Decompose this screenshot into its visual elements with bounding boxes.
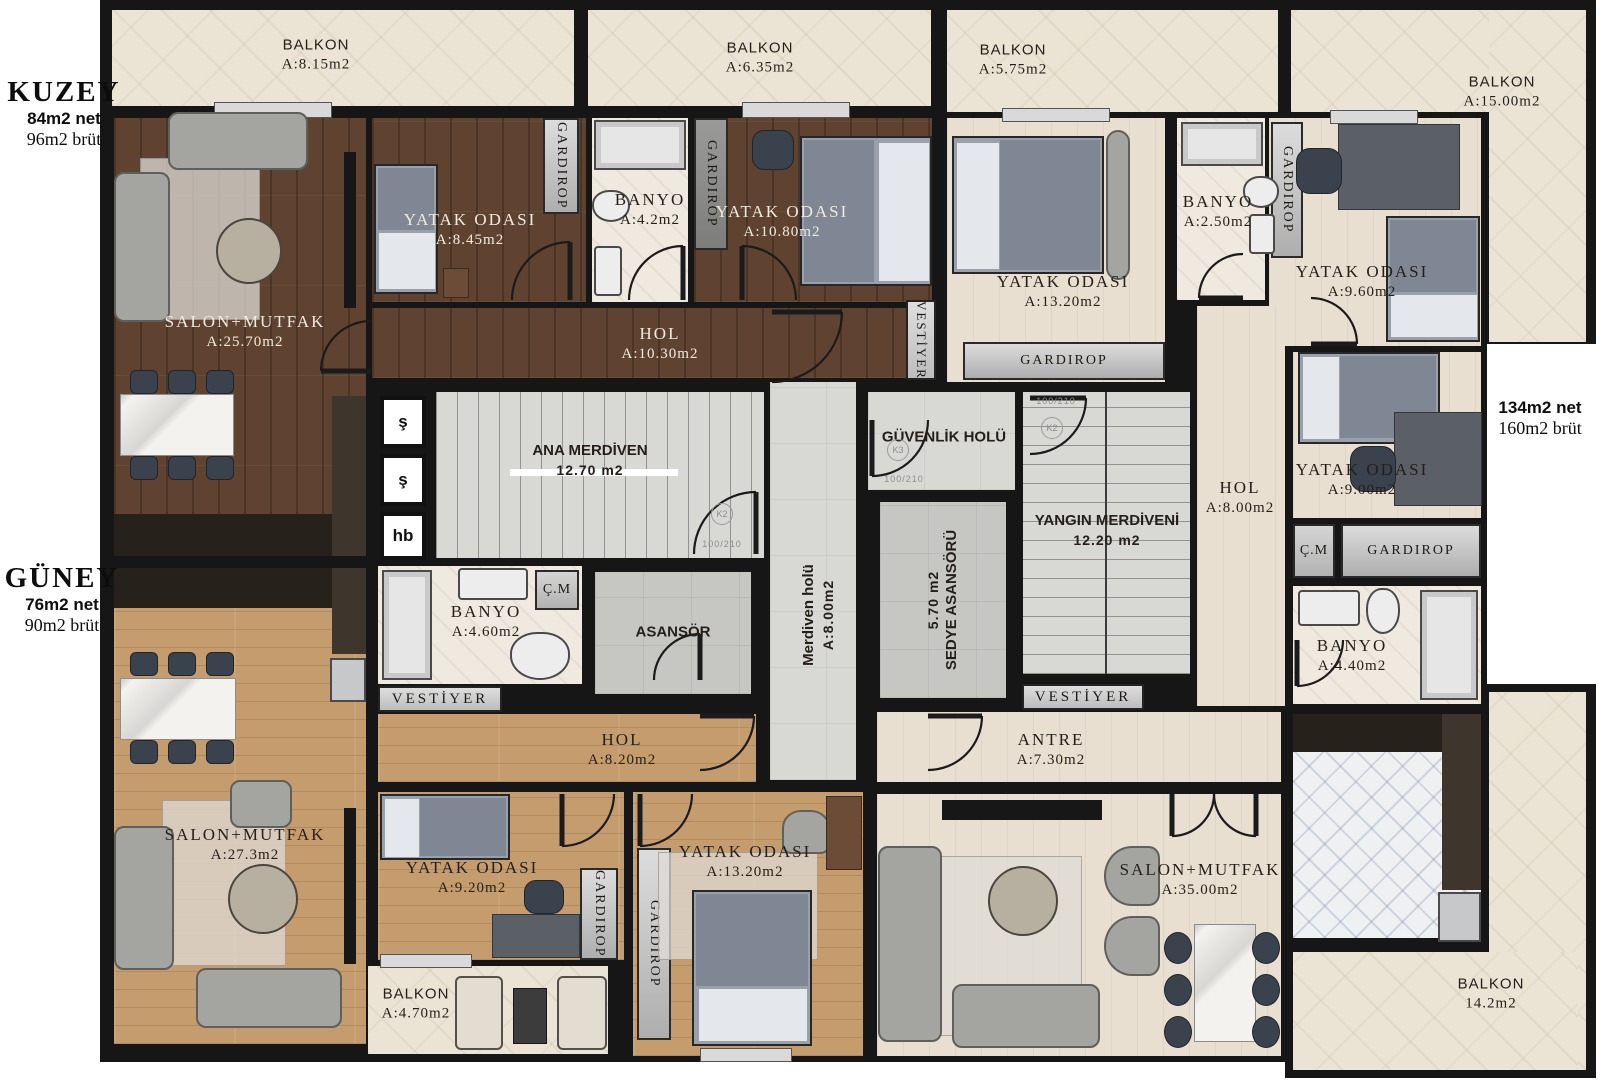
- room-guney-hol: [378, 714, 756, 782]
- sink: [1249, 214, 1275, 254]
- room-balkon-142-bottom: [1293, 952, 1578, 1070]
- dining-chair: [1252, 974, 1280, 1006]
- desk: [1338, 124, 1460, 210]
- cm-right: Ç.M: [1293, 524, 1335, 578]
- desk-chair: [1296, 148, 1342, 194]
- door-code-k3: K3: [887, 439, 909, 461]
- desk-chair: [752, 130, 794, 170]
- balcony-sofa: [557, 976, 607, 1050]
- floor-plan: ş ş hb GARDIROP GARDIROP VESTİYER GARDIR…: [0, 0, 1600, 1085]
- sink: [1298, 590, 1360, 626]
- bed-pillow: [878, 142, 930, 282]
- shaft-hb: hb: [380, 512, 426, 560]
- sofa: [196, 968, 342, 1028]
- apartment-net-area: 76m2 net: [2, 595, 122, 615]
- wardrobe-label: GARDIROP: [703, 140, 719, 228]
- nightstand: [443, 268, 469, 298]
- shower: [1420, 590, 1478, 700]
- balcony-table: [513, 988, 547, 1044]
- coffee-table: [216, 218, 282, 284]
- wardrobe-right-yatak1: GARDIROP: [963, 342, 1165, 380]
- armchair: [1104, 916, 1160, 976]
- desk: [1394, 412, 1482, 506]
- apartment-right-summary: 134m2 net 160m2 brüt: [1481, 398, 1599, 439]
- apartment-gross-area: 90m2 brüt: [2, 615, 122, 636]
- cm-core: Ç.M: [535, 570, 579, 610]
- toilet: [1366, 588, 1400, 634]
- sink: [594, 246, 622, 296]
- bed-blanket: [1000, 140, 1100, 270]
- dresser: [826, 796, 862, 870]
- tv-unit: [344, 808, 356, 964]
- refrigerator: [1438, 892, 1481, 942]
- shower: [382, 570, 432, 680]
- apartment-title: KUZEY: [4, 76, 124, 109]
- bed-pillow: [378, 232, 436, 290]
- dining-table: [120, 678, 236, 740]
- vestiyer-kuzey: VESTİYER: [906, 300, 936, 380]
- toilet: [1243, 176, 1279, 208]
- dining-chair: [1164, 932, 1192, 964]
- dining-chair: [206, 370, 234, 394]
- door-dim: 100/210: [702, 539, 742, 549]
- room-right-hol: [1197, 306, 1285, 706]
- room-balkon-1500-side: [1489, 10, 1586, 342]
- apartment-title: GÜNEY: [2, 562, 122, 595]
- dining-chair: [1252, 1016, 1280, 1048]
- room-sedye-asansoru: [880, 502, 1006, 698]
- plan-right-notch: [1487, 344, 1600, 684]
- armchair: [1104, 846, 1160, 906]
- bed-blanket: [420, 798, 506, 856]
- room-merdiven-holu: [770, 382, 856, 780]
- shaft-hb-label: hb: [393, 526, 414, 546]
- dining-table: [120, 394, 234, 456]
- balcony-sofa: [455, 976, 503, 1050]
- room-balkon-635: [588, 10, 931, 106]
- wardrobe-label: GARDIROP: [1279, 146, 1295, 234]
- wardrobe-label: GARDIROP: [591, 870, 607, 958]
- room-balkon-815: [112, 10, 574, 106]
- bed-pillow: [384, 798, 420, 858]
- toilet: [510, 632, 570, 680]
- desk-chair: [1350, 446, 1396, 492]
- desk: [492, 914, 580, 958]
- shaft-s2: ş: [380, 454, 426, 506]
- door-code-label: K3: [892, 445, 903, 455]
- window-kuzey-yatak2: [742, 102, 850, 118]
- dining-chair: [168, 740, 196, 764]
- room-kuzey-hol: [372, 308, 936, 378]
- sofa: [952, 984, 1100, 1048]
- apartment-net-area: 134m2 net: [1481, 398, 1599, 418]
- window-guney-yatak2: [700, 1048, 792, 1062]
- door-code-label: K2: [716, 509, 727, 519]
- tv-unit: [344, 152, 356, 308]
- dining-chair: [130, 652, 158, 676]
- dining-chair: [206, 652, 234, 676]
- kitchen-cabinet: [1442, 714, 1481, 890]
- wardrobe-kuzey-yatak1: GARDIROP: [543, 118, 579, 214]
- apartment-gross-area: 160m2 brüt: [1481, 418, 1599, 439]
- sofa: [878, 846, 942, 1042]
- bedroom-bench: [1106, 130, 1130, 280]
- bed-pillow: [956, 142, 1000, 270]
- bed-pillow: [1302, 356, 1340, 440]
- wardrobe-right-hall: GARDIROP: [1341, 524, 1481, 578]
- kitchen-cabinet: [332, 568, 366, 654]
- kitchen-counter: [114, 568, 334, 608]
- tv-unit: [942, 800, 1102, 820]
- door-dim: 100/210: [1036, 396, 1076, 406]
- vestiyer-label: VESTİYER: [1035, 689, 1132, 706]
- shower: [594, 120, 686, 170]
- wardrobe-label: GARDIROP: [1020, 353, 1108, 369]
- stair-handrail: [510, 469, 678, 476]
- room-asansor: [595, 572, 751, 694]
- window-right-yatak2: [1330, 110, 1418, 124]
- bed-blanket: [696, 894, 808, 986]
- armchair: [782, 810, 830, 854]
- wardrobe-kuzey-yatak2: GARDIROP: [694, 118, 728, 250]
- dining-chair: [1164, 974, 1192, 1006]
- kitchen-counter: [114, 514, 334, 556]
- kitchen-cabinet: [332, 396, 366, 556]
- door-code-label: K2: [1046, 423, 1057, 433]
- shaft-s2-label: ş: [398, 470, 407, 490]
- dining-chair: [168, 370, 196, 394]
- bed-blanket: [1390, 220, 1476, 292]
- refrigerator: [330, 658, 366, 702]
- wardrobe-label: GARDIROP: [1367, 543, 1455, 559]
- bed-pillow: [1390, 294, 1478, 338]
- door-dim: 100/210: [884, 474, 924, 484]
- window-right-yatak1: [1002, 108, 1110, 122]
- dining-chair: [130, 456, 158, 480]
- dining-chair: [206, 740, 234, 764]
- coffee-table: [988, 866, 1058, 936]
- dining-chair: [130, 370, 158, 394]
- desk-chair: [524, 880, 564, 914]
- apartment-net-area: 84m2 net: [4, 109, 124, 129]
- bed-blanket: [378, 168, 434, 230]
- door-code-k2: K2: [711, 503, 733, 525]
- sofa: [168, 112, 308, 170]
- cm-label: Ç.M: [543, 582, 571, 598]
- vestiyer-guney: VESTİYER: [378, 686, 502, 712]
- sofa: [114, 826, 174, 970]
- bed-pillow: [698, 988, 808, 1042]
- armchair: [230, 780, 292, 828]
- shower: [1181, 122, 1263, 166]
- coffee-table: [228, 864, 298, 934]
- bed-blanket: [804, 140, 874, 282]
- shaft-s1: ş: [380, 396, 426, 448]
- cm-label: Ç.M: [1300, 543, 1328, 559]
- vestiyer-label: VESTİYER: [913, 301, 929, 380]
- apartment-gross-area: 96m2 brüt: [4, 129, 124, 150]
- vestiyer-right: VESTİYER: [1022, 684, 1144, 710]
- sofa: [114, 172, 170, 322]
- dining-chair: [168, 652, 196, 676]
- wardrobe-guney-yatak1: GARDIROP: [580, 868, 618, 960]
- apartment-kuzey-summary: KUZEY 84m2 net 96m2 brüt: [4, 76, 124, 150]
- dining-table: [1194, 924, 1256, 1042]
- room-right-antre: [877, 712, 1281, 782]
- sink: [458, 568, 528, 600]
- window-guney-yatak1: [380, 954, 472, 968]
- dining-chair: [130, 740, 158, 764]
- dining-chair: [1164, 1016, 1192, 1048]
- toilet: [592, 190, 630, 222]
- apartment-guney-summary: GÜNEY 76m2 net 90m2 brüt: [2, 562, 122, 636]
- dining-chair: [1252, 932, 1280, 964]
- dining-chair: [206, 456, 234, 480]
- door-code-k2b: K2: [1041, 417, 1063, 439]
- vestiyer-label: VESTİYER: [392, 691, 489, 708]
- room-balkon-575: [947, 10, 1278, 112]
- shaft-s1-label: ş: [398, 412, 407, 432]
- yangin-center-rail: [1105, 392, 1107, 674]
- wardrobe-label: GARDIROP: [553, 122, 569, 210]
- dining-chair: [168, 456, 196, 480]
